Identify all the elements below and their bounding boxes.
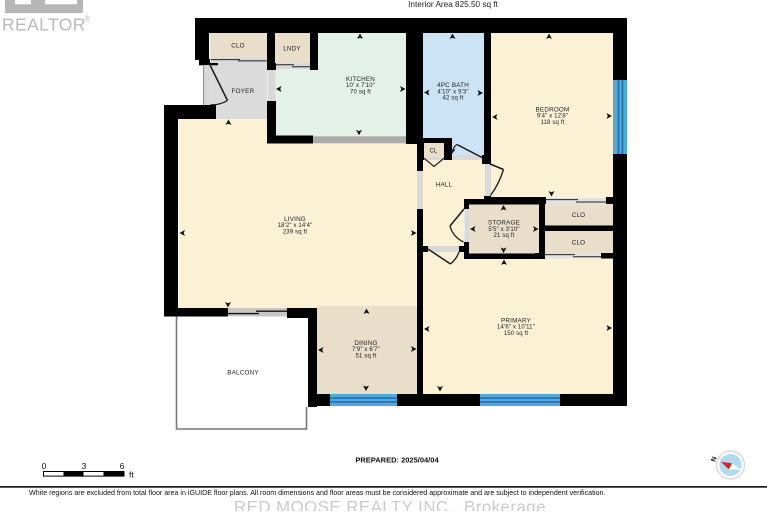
svg-text:CLO: CLO (231, 43, 245, 50)
svg-text:3: 3 (82, 461, 87, 471)
svg-text:LIVING: LIVING (284, 216, 306, 223)
svg-text:239 sq ft: 239 sq ft (283, 229, 308, 235)
svg-text:PRIMARY: PRIMARY (501, 318, 532, 325)
svg-text:CLO: CLO (572, 212, 586, 219)
svg-text:RED MOOSE REALTY INC., Brokera: RED MOOSE REALTY INC., Brokerage (234, 498, 546, 512)
svg-text:5'5" x 3'10": 5'5" x 3'10" (488, 227, 519, 233)
svg-text:70 sq ft: 70 sq ft (350, 89, 371, 95)
svg-text:150 sq ft: 150 sq ft (504, 331, 529, 337)
svg-text:51 sq ft: 51 sq ft (356, 353, 377, 359)
svg-text:7'9" x 6'7": 7'9" x 6'7" (352, 347, 380, 353)
svg-text:10' x 7'10": 10' x 7'10" (346, 83, 375, 89)
svg-text:LNDY: LNDY (283, 45, 301, 52)
svg-text:14'6" x 10'11": 14'6" x 10'11" (497, 325, 535, 331)
svg-text:4PC BATH: 4PC BATH (437, 82, 469, 89)
svg-text:FOYER: FOYER (232, 88, 255, 95)
svg-text:White regions are excluded fro: White regions are excluded from total fl… (29, 489, 606, 497)
svg-text:6: 6 (120, 461, 125, 471)
svg-text:42 sq ft: 42 sq ft (443, 96, 464, 102)
svg-text:®: ® (84, 14, 91, 24)
svg-text:CLO: CLO (572, 240, 586, 247)
svg-text:PREPARED: 2025/04/04: PREPARED: 2025/04/04 (355, 456, 439, 465)
svg-text:STORAGE: STORAGE (488, 220, 520, 227)
svg-text:9'4" x 12'8": 9'4" x 12'8" (537, 114, 568, 120)
svg-text:21 sq ft: 21 sq ft (494, 233, 515, 239)
svg-text:DINING: DINING (354, 340, 377, 347)
svg-text:KITCHEN: KITCHEN (346, 76, 375, 83)
svg-text:4'10" x 9'3": 4'10" x 9'3" (437, 89, 468, 95)
svg-text:118 sq ft: 118 sq ft (541, 120, 565, 126)
svg-text:ft: ft (129, 470, 134, 480)
svg-text:0: 0 (42, 461, 47, 471)
svg-text:REALTOR: REALTOR (2, 15, 86, 35)
svg-text:BEDROOM: BEDROOM (536, 107, 570, 114)
svg-text:CL: CL (430, 149, 438, 155)
svg-text:BALCONY: BALCONY (227, 370, 259, 377)
svg-text:18'2" x 14'4": 18'2" x 14'4" (278, 223, 313, 229)
svg-text:HALL: HALL (436, 182, 453, 189)
svg-text:Interior Area 825.50 sq ft: Interior Area 825.50 sq ft (408, 0, 498, 9)
